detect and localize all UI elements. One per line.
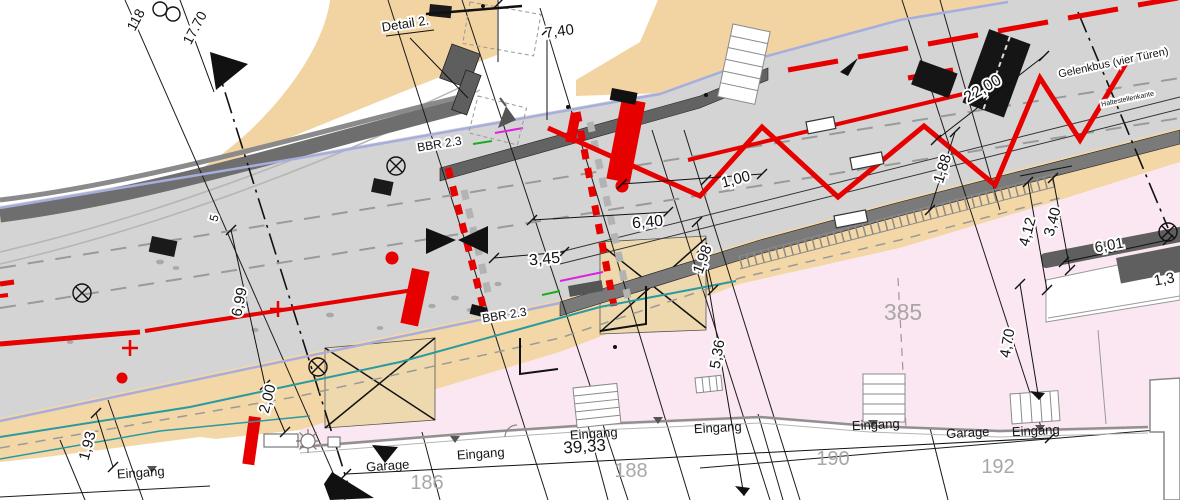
plot-number-4: 385 — [884, 299, 922, 325]
plot-number-1: 188 — [614, 460, 647, 482]
entrance-label-5: Eingang — [1012, 422, 1060, 439]
axis-arrow-top — [210, 52, 248, 90]
entrance-label-3: Eingang — [694, 419, 742, 436]
entrance-label-7: Garage — [946, 424, 990, 441]
driveway-hatch-left — [325, 338, 435, 428]
dimension-label-18: 118 — [123, 6, 148, 33]
site-plan-canvas: 7,4022,001,881,006,403,456,992,001,935,3… — [0, 0, 1180, 500]
entrance-label-6: Garage — [366, 457, 410, 475]
dimension-label-4: 6,40 — [631, 213, 664, 233]
front-door-box — [328, 437, 340, 447]
dimension-label-5: 3,45 — [528, 250, 561, 270]
dimension-label-0: 7,40 — [544, 21, 575, 42]
plot-number-3: 192 — [981, 456, 1014, 478]
dimension-label-17: 17.70 — [179, 8, 210, 47]
plot-number-2: 190 — [816, 448, 849, 470]
site-plan-drawing: 7,4022,001,881,006,403,456,992,001,935,3… — [0, 0, 1180, 500]
double-circle-symbol — [153, 2, 180, 21]
plot-number-0: 186 — [410, 472, 443, 494]
dimension-label-15: 1,3 — [1152, 269, 1175, 289]
entrance-label-4: Eingang — [852, 416, 900, 433]
